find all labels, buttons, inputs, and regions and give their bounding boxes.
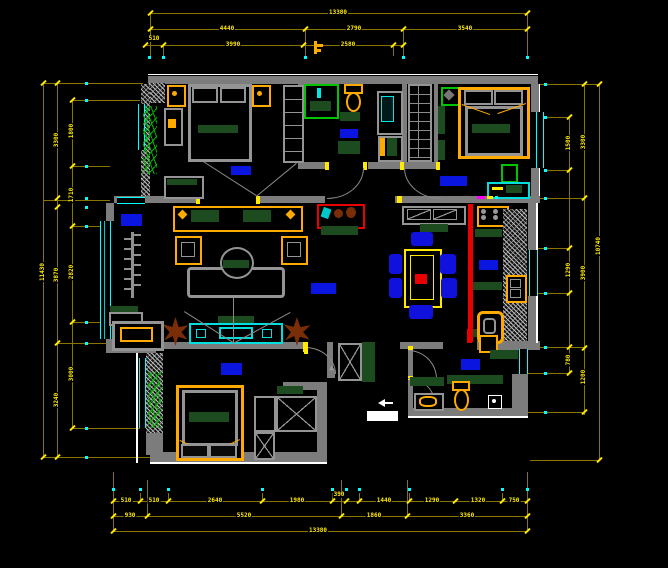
room-label-bathroom-bottom (461, 359, 480, 370)
bed-headboard-panel (220, 87, 246, 103)
table-plant-leaves (223, 260, 249, 268)
burner-icon (481, 209, 486, 214)
wall-kitchen-east (528, 296, 536, 341)
tv-cabinet-door (196, 329, 206, 338)
dining-chair (441, 278, 457, 298)
vanity-cabinet-door (380, 138, 385, 156)
closet-rail (418, 86, 419, 158)
sink-basin (510, 289, 521, 298)
appliance-drum (483, 318, 496, 334)
dim-label: 1200 (581, 369, 587, 385)
window-bedroom-tr (536, 112, 544, 168)
burner-icon (493, 209, 498, 214)
plant-icon (143, 106, 157, 174)
wall-outer-edge (150, 462, 327, 464)
dim-label: 1290 (424, 498, 440, 504)
wall-right-upper (531, 84, 539, 112)
dim-label: 3300 (54, 132, 60, 148)
dim-ext (407, 480, 408, 516)
wall-bath-south (298, 162, 327, 169)
room-label-living-west (121, 214, 142, 226)
wardrobe-box (254, 396, 276, 432)
nightstand (167, 85, 186, 107)
room-label-bedroom-top-left (231, 166, 251, 175)
snap-dot (85, 342, 88, 345)
snap-dot (544, 247, 547, 250)
nightstand (252, 85, 271, 107)
wall-bath2-east (512, 374, 528, 410)
window-mid-line (104, 221, 105, 339)
snap-dot (331, 488, 334, 491)
dim-ext (341, 480, 342, 516)
dim-label: 5520 (236, 513, 252, 519)
stool (168, 119, 176, 128)
dim-label: 510 (148, 36, 161, 42)
vanity-mirror (381, 96, 394, 122)
toilet-icon (454, 389, 469, 411)
dim-label: 13380 (328, 10, 348, 16)
snap-dot (85, 99, 88, 102)
armchair-seat (181, 242, 195, 257)
dim-label: 3360 (459, 513, 475, 519)
door-jamb (304, 342, 308, 354)
room-label-kitchen (479, 260, 498, 270)
desk-item (492, 187, 503, 190)
snap-dot (544, 83, 547, 86)
lamp-icon (257, 91, 262, 96)
snap-dot (544, 372, 547, 375)
dining-table-center (415, 274, 427, 284)
wall-kitchen-east (528, 203, 536, 250)
dim-label: 3300 (581, 134, 587, 150)
dim-label: 930 (124, 513, 137, 519)
kitchen-counter (473, 282, 502, 290)
snap-dot (544, 169, 547, 172)
wardrobe-xbox (276, 396, 317, 432)
snap-dot (85, 206, 88, 209)
plant-icon (148, 372, 161, 428)
paper-roll (492, 399, 496, 403)
bed-headboard-panel (494, 90, 523, 105)
dim-label: 1980 (289, 498, 305, 504)
bed-headboard-panel (464, 90, 493, 105)
toilet-icon (346, 92, 361, 112)
snap-dot (526, 56, 529, 59)
bed-runner (472, 124, 510, 133)
bath2-counter (490, 350, 518, 359)
window-bath2 (519, 349, 528, 374)
basin-icon (419, 396, 437, 407)
dim-ext (57, 343, 110, 344)
wardrobe-tall (283, 85, 304, 163)
bed-headboard-panel (192, 87, 218, 103)
snap-dot (408, 488, 411, 491)
snap-dot (345, 488, 348, 491)
snap-dot (162, 56, 165, 59)
dim-label: 1710 (69, 187, 75, 203)
snap-dot (358, 488, 361, 491)
dim-ext (533, 248, 569, 249)
console-flowers (346, 207, 356, 218)
dining-chair (389, 278, 402, 298)
snap-dot (544, 292, 547, 295)
wall-living-north (258, 196, 325, 203)
room-label-bedroom-top-right (440, 176, 467, 186)
door-jamb (397, 196, 402, 203)
dim-label: 2820 (69, 264, 75, 280)
pipe-red (467, 329, 472, 343)
shower-head-icon (317, 88, 321, 98)
bed-footboard-panel (209, 444, 237, 458)
dim-ext (525, 373, 569, 374)
dining-chair (411, 232, 433, 246)
snap-dot (85, 321, 88, 324)
sideboard-door (407, 209, 431, 220)
snap-dot (85, 427, 88, 430)
wall-top (148, 76, 538, 84)
snap-dot (544, 411, 547, 414)
console-flowers (334, 209, 343, 218)
dining-chair (409, 305, 433, 319)
snap-dot (148, 56, 151, 59)
wall-living-west (106, 203, 114, 221)
dining-chair (440, 254, 456, 274)
dim-tick (596, 457, 602, 463)
dim-label: 3870 (54, 267, 60, 283)
door-symbol-mark (317, 44, 323, 47)
wall-outer-edge (408, 416, 528, 418)
dim-label: 1440 (376, 498, 392, 504)
desk-blotter (506, 185, 522, 193)
dim-label: 11430 (40, 262, 46, 282)
dim-label: 13380 (308, 528, 328, 534)
dim-ext (72, 166, 110, 167)
dim-label: 510 (148, 498, 161, 504)
armchair-seat (287, 242, 301, 257)
dim-label: 3240 (54, 392, 60, 408)
sofa-cushion (243, 210, 271, 222)
door-leaf-line (200, 159, 257, 196)
window-bedroom-bl (139, 358, 146, 428)
kitchen-counter (475, 229, 502, 237)
vanity-cabinet-shelf (387, 138, 397, 156)
sink-basin (510, 279, 521, 288)
kitchen-partition-red (468, 204, 473, 342)
dim-label: 3990 (225, 42, 241, 48)
door-leaf-line (256, 163, 297, 197)
snap-dot (85, 456, 88, 459)
snap-dot (544, 116, 547, 119)
snap-dot (85, 225, 88, 228)
window-living-nw (117, 197, 145, 204)
dim-label: 1800 (69, 123, 75, 139)
micro-dim-mark (477, 196, 485, 199)
dim-ext (540, 84, 599, 85)
pointer-tail (385, 402, 393, 404)
dim-line (145, 45, 403, 46)
bed-runner (189, 412, 229, 422)
shower-shelf (310, 101, 331, 111)
dim-label: 1500 (566, 135, 572, 151)
dim-tick (524, 528, 530, 534)
white-note-patch (367, 411, 398, 421)
hall-cabinet (338, 343, 362, 381)
dim-ext (527, 13, 528, 58)
dim-label: 510 (120, 498, 133, 504)
snap-dot (85, 197, 88, 200)
bath-shelf (340, 112, 360, 121)
tv-cabinet-door (262, 329, 272, 338)
snap-dot (85, 82, 88, 85)
bath-cabinet (338, 141, 360, 154)
snap-dot (85, 165, 88, 168)
dim-label: 1860 (366, 513, 382, 519)
snap-dot (501, 488, 504, 491)
burner-icon (493, 215, 498, 220)
wall-bath2-north (400, 342, 443, 349)
dim-label: 780 (566, 354, 572, 367)
bed-runner (198, 125, 238, 133)
snap-dot (544, 197, 547, 200)
room-label-bedroom-bottom-left (221, 363, 242, 375)
sideboard-door (433, 209, 457, 220)
micro-dim-mark (487, 196, 493, 199)
snap-dot (402, 56, 405, 59)
dim-label: 3000 (69, 366, 75, 382)
wall-bath-south (368, 162, 402, 169)
coat-closet (408, 84, 432, 162)
wall-step-south (317, 390, 327, 456)
snap-dot (139, 488, 142, 491)
desk-chair (501, 164, 518, 183)
bench-cushion (167, 179, 197, 185)
wall-outer-edge (136, 353, 138, 463)
dim-label: 3900 (581, 265, 587, 281)
dim-label: 3540 (457, 26, 473, 32)
dim-line (599, 84, 600, 460)
cad-floor-plan-canvas[interactable]: 13380 4440 2790 3540 510 3990 2580 11430… (0, 0, 668, 568)
dim-label: 390 (333, 492, 346, 498)
dim-label: 2580 (340, 42, 356, 48)
dim-label: 10740 (596, 236, 602, 256)
snap-dot (495, 196, 498, 199)
dim-ext (72, 100, 140, 101)
room-label-living-center (311, 283, 336, 294)
wardrobe-xbox (254, 432, 275, 460)
dim-ext (530, 460, 599, 461)
window-kitchen (529, 250, 538, 296)
shelf-strip (438, 106, 445, 134)
bed-footboard-panel (181, 444, 209, 458)
dim-ext (533, 293, 569, 294)
dim-label: 4440 (219, 26, 235, 32)
door-symbol-mark (314, 41, 317, 54)
sofa-cushion (191, 210, 219, 222)
dining-chair (389, 254, 402, 274)
snap-dot (304, 56, 307, 59)
shelf-strip (438, 140, 445, 160)
wardrobe-shelf (277, 386, 303, 394)
pointer-icon (378, 399, 385, 407)
snap-dot (544, 346, 547, 349)
dim-label: 750 (508, 498, 521, 504)
dim-label: 1320 (470, 498, 486, 504)
door-symbol-mark (317, 49, 321, 52)
door-jamb (256, 196, 260, 204)
snap-dot (112, 488, 115, 491)
dim-ext (520, 412, 584, 413)
console-shelf (321, 226, 358, 235)
radiator-fins (134, 234, 141, 289)
lamp-icon (172, 91, 177, 96)
door-swing-bedroom-tr (404, 168, 441, 199)
light-drop-line (233, 297, 234, 343)
burner-icon (481, 215, 486, 220)
bath2-counter (410, 377, 444, 386)
snap-dot (261, 488, 264, 491)
radiator-fins (124, 238, 131, 293)
dim-label: 1290 (566, 262, 572, 278)
dim-ext (72, 428, 140, 429)
snap-dot (167, 488, 170, 491)
hall-shelf (362, 342, 375, 382)
dim-ext (43, 457, 150, 458)
sideboard-shelf (420, 224, 448, 232)
dim-line (113, 501, 527, 502)
room-label-bathroom-top (340, 129, 358, 138)
dim-label: 2790 (346, 26, 362, 32)
shoe-cabinet-drawer (120, 327, 153, 342)
snap-dot (526, 488, 529, 491)
door-swing-entry (327, 168, 364, 199)
dim-label: 2640 (207, 498, 223, 504)
door-swing-bath2 (408, 350, 437, 379)
wall-outer-edge (148, 74, 538, 75)
dim-ext (43, 200, 110, 201)
dim-tick (566, 370, 572, 376)
